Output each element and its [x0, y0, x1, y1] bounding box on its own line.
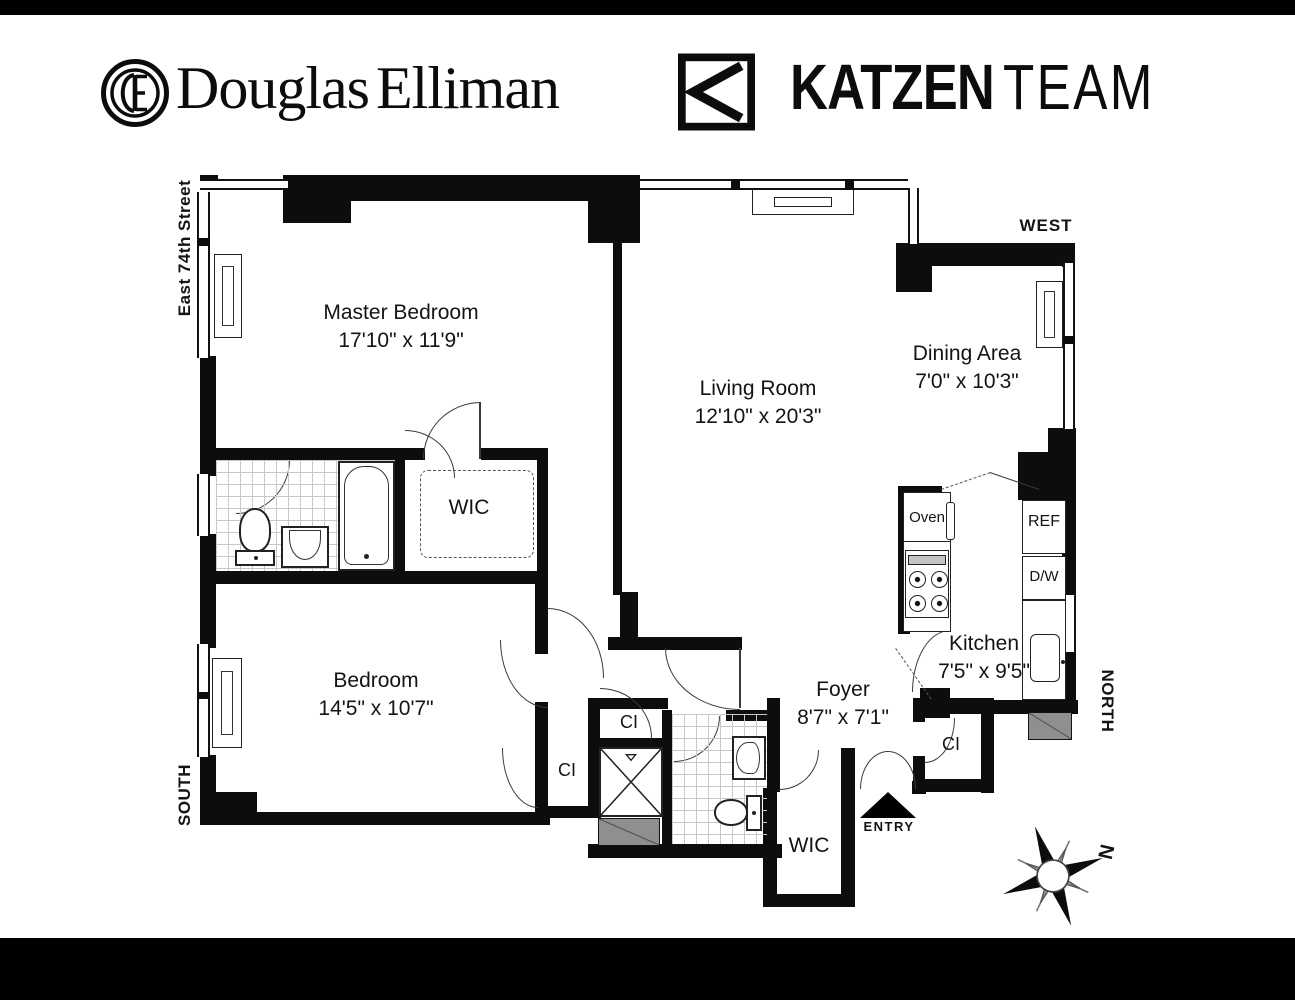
entry-arrow-icon: [860, 792, 916, 818]
bathtub-drain-dot: [364, 554, 369, 559]
window: [640, 179, 908, 190]
douglas-elliman-monogram-icon: [100, 58, 170, 128]
katzen-team-logo-icon: [678, 53, 755, 131]
brand-second-word: Elliman: [376, 55, 559, 121]
wall: [200, 534, 216, 648]
brand-wordmark: DouglasElliman: [176, 54, 559, 123]
wall: [898, 243, 1064, 266]
door-leaf: [479, 403, 481, 459]
shaded-duct: [598, 818, 660, 846]
room-label-dining-area: Dining Area 7'0" x 10'3": [913, 340, 1022, 396]
window-mullion: [731, 179, 740, 190]
entry-door-arc: [860, 751, 888, 789]
shaded-duct: [1028, 712, 1072, 740]
toilet-icon: [239, 508, 271, 552]
team-secondary-word: TEAM: [1003, 50, 1155, 124]
wall: [588, 844, 782, 858]
team-primary-word: KATZEN: [790, 50, 994, 124]
stove-back-strip: [908, 555, 946, 565]
room-label-living-room: Living Room 12'10" x 20'3": [695, 375, 822, 431]
refrigerator-label: REF: [1022, 500, 1066, 544]
toilet-flush-dot: [254, 556, 258, 560]
bottom-black-bar: [0, 938, 1295, 1000]
shower-stall: [599, 747, 663, 817]
oven-label: Oven: [903, 492, 951, 542]
door-leaf: [739, 648, 741, 708]
wall: [283, 175, 590, 201]
room-name: Foyer: [797, 676, 889, 704]
window: [197, 192, 210, 358]
room-name: Master Bedroom: [323, 299, 478, 327]
west-label: WEST: [1019, 216, 1072, 236]
entry-door-arc: [888, 751, 916, 789]
door-arc: [548, 608, 604, 678]
wall: [913, 779, 994, 792]
door-arc: [779, 750, 819, 790]
window: [200, 179, 288, 190]
bathtub-inner: [344, 466, 389, 565]
floorplan-page: DouglasElliman KATZENTEAM: [0, 0, 1295, 1000]
window-mullion: [845, 179, 854, 190]
window: [197, 474, 210, 536]
stove-burner-icon: [909, 571, 926, 588]
wall: [537, 448, 548, 574]
window-sill: [212, 658, 242, 748]
room-name: Bedroom: [318, 667, 433, 695]
wall: [200, 812, 550, 825]
window: [908, 188, 919, 244]
room-dims: 7'5" x 9'5": [938, 658, 1030, 686]
toilet-icon: [714, 799, 748, 826]
stove-burner-icon: [931, 595, 948, 612]
room-dims: 17'10" x 11'9": [323, 327, 478, 355]
wall: [588, 175, 640, 243]
room-dims: 14'5" x 10'7": [318, 695, 433, 723]
south-label: SOUTH: [175, 764, 195, 826]
brand-first-word: Douglas: [176, 55, 369, 121]
wall: [200, 356, 216, 476]
room-name: Dining Area: [913, 340, 1022, 368]
window-mullion: [197, 692, 210, 699]
closet-label-entry: CI: [942, 734, 960, 755]
window-mullion: [1063, 336, 1075, 344]
room-label-foyer: Foyer 8'7" x 7'1": [797, 676, 889, 732]
room-label-wic-upper: WIC: [449, 496, 490, 520]
wall: [613, 243, 622, 595]
room-dims: 12'10" x 20'3": [695, 403, 822, 431]
wall: [215, 448, 425, 460]
north-label: NORTH: [1097, 670, 1117, 733]
compass-rose-icon: [985, 807, 1122, 945]
sink-bowl-icon: [736, 742, 760, 774]
street-label: East 74th Street: [175, 180, 195, 317]
window-sill: [1036, 281, 1063, 348]
team-wordmark: KATZENTEAM: [790, 50, 1193, 124]
wall: [662, 710, 672, 848]
window: [1063, 263, 1075, 429]
wall: [763, 894, 855, 907]
window-sill: [214, 254, 242, 338]
room-label-kitchen: Kitchen 7'5" x 9'5": [938, 630, 1030, 686]
stove-burner-icon: [931, 571, 948, 588]
wall: [200, 571, 548, 584]
room-label-wic-lower: WIC: [789, 834, 830, 858]
kitchen-sink-icon: [1030, 634, 1060, 682]
room-dims: 8'7" x 7'1": [797, 704, 889, 732]
closet-label-bedroom: CI: [558, 760, 576, 781]
ac-unit: [774, 197, 832, 207]
door-arc: [500, 640, 548, 708]
toilet-flush-dot: [752, 811, 756, 815]
room-dims: 7'0" x 10'3": [913, 368, 1022, 396]
dishwasher-label: D/W: [1022, 556, 1066, 596]
room-label-master-bedroom: Master Bedroom 17'10" x 11'9": [323, 299, 478, 355]
room-label-bedroom: Bedroom 14'5" x 10'7": [318, 667, 433, 723]
top-black-bar: [0, 0, 1295, 15]
entry-label: ENTRY: [863, 819, 914, 834]
shower-x-lines: [601, 749, 661, 815]
room-name: Kitchen: [938, 630, 1030, 658]
closet-label-hall: CI: [620, 712, 638, 733]
stove-burner-icon: [909, 595, 926, 612]
door-leaf: [941, 472, 990, 490]
kitchen-faucet-dot: [1061, 660, 1065, 664]
door-arc: [665, 648, 740, 710]
wall: [841, 748, 855, 907]
window: [197, 644, 210, 757]
door-arc: [502, 748, 538, 808]
window-mullion: [197, 238, 210, 246]
room-name: Living Room: [695, 375, 822, 403]
wall: [395, 458, 405, 574]
wall: [620, 592, 638, 640]
